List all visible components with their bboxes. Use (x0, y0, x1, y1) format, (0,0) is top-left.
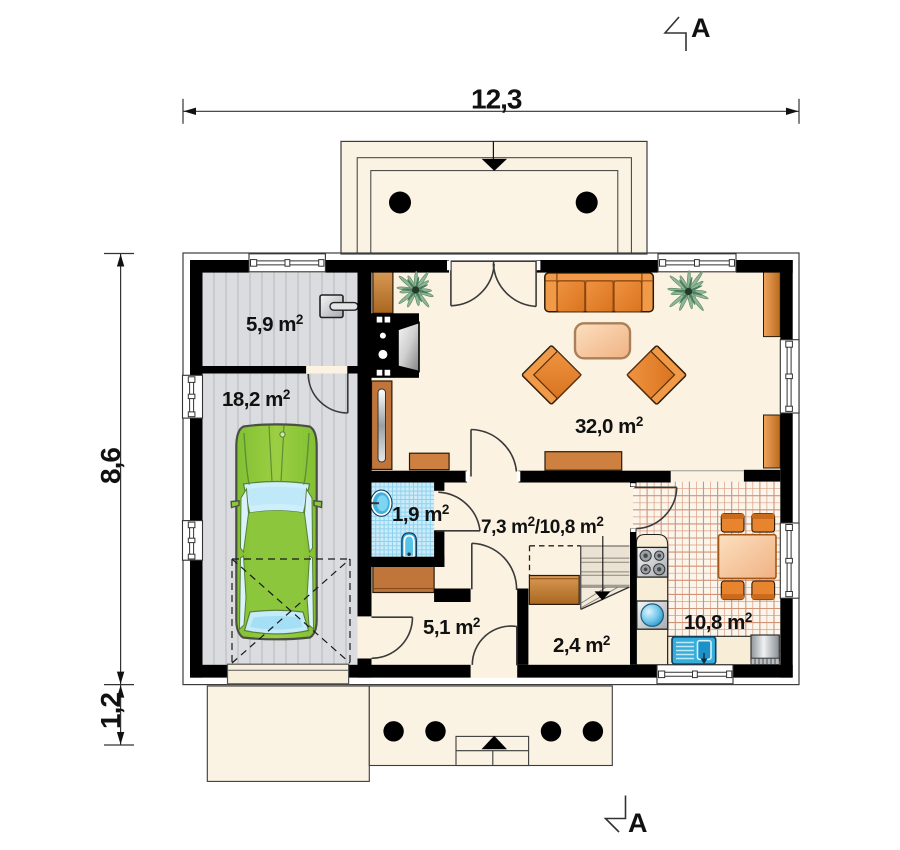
svg-text:8,6: 8,6 (95, 448, 126, 484)
svg-text:32,0 m2: 32,0 m2 (575, 414, 643, 438)
svg-text:10,8 m2: 10,8 m2 (684, 610, 752, 634)
svg-text:A: A (691, 13, 711, 43)
svg-text:2,4 m2: 2,4 m2 (553, 633, 610, 657)
svg-text:5,9 m2: 5,9 m2 (246, 312, 303, 336)
svg-text:12,3: 12,3 (471, 84, 522, 115)
svg-text:5,1 m2: 5,1 m2 (423, 615, 480, 639)
svg-text:1,9 m2: 1,9 m2 (392, 502, 449, 526)
svg-text:18,2 m2: 18,2 m2 (222, 387, 290, 411)
svg-text:A: A (628, 808, 648, 838)
svg-text:7,3 m2/10,8 m2: 7,3 m2/10,8 m2 (481, 514, 603, 538)
svg-text:1,2: 1,2 (95, 693, 126, 729)
